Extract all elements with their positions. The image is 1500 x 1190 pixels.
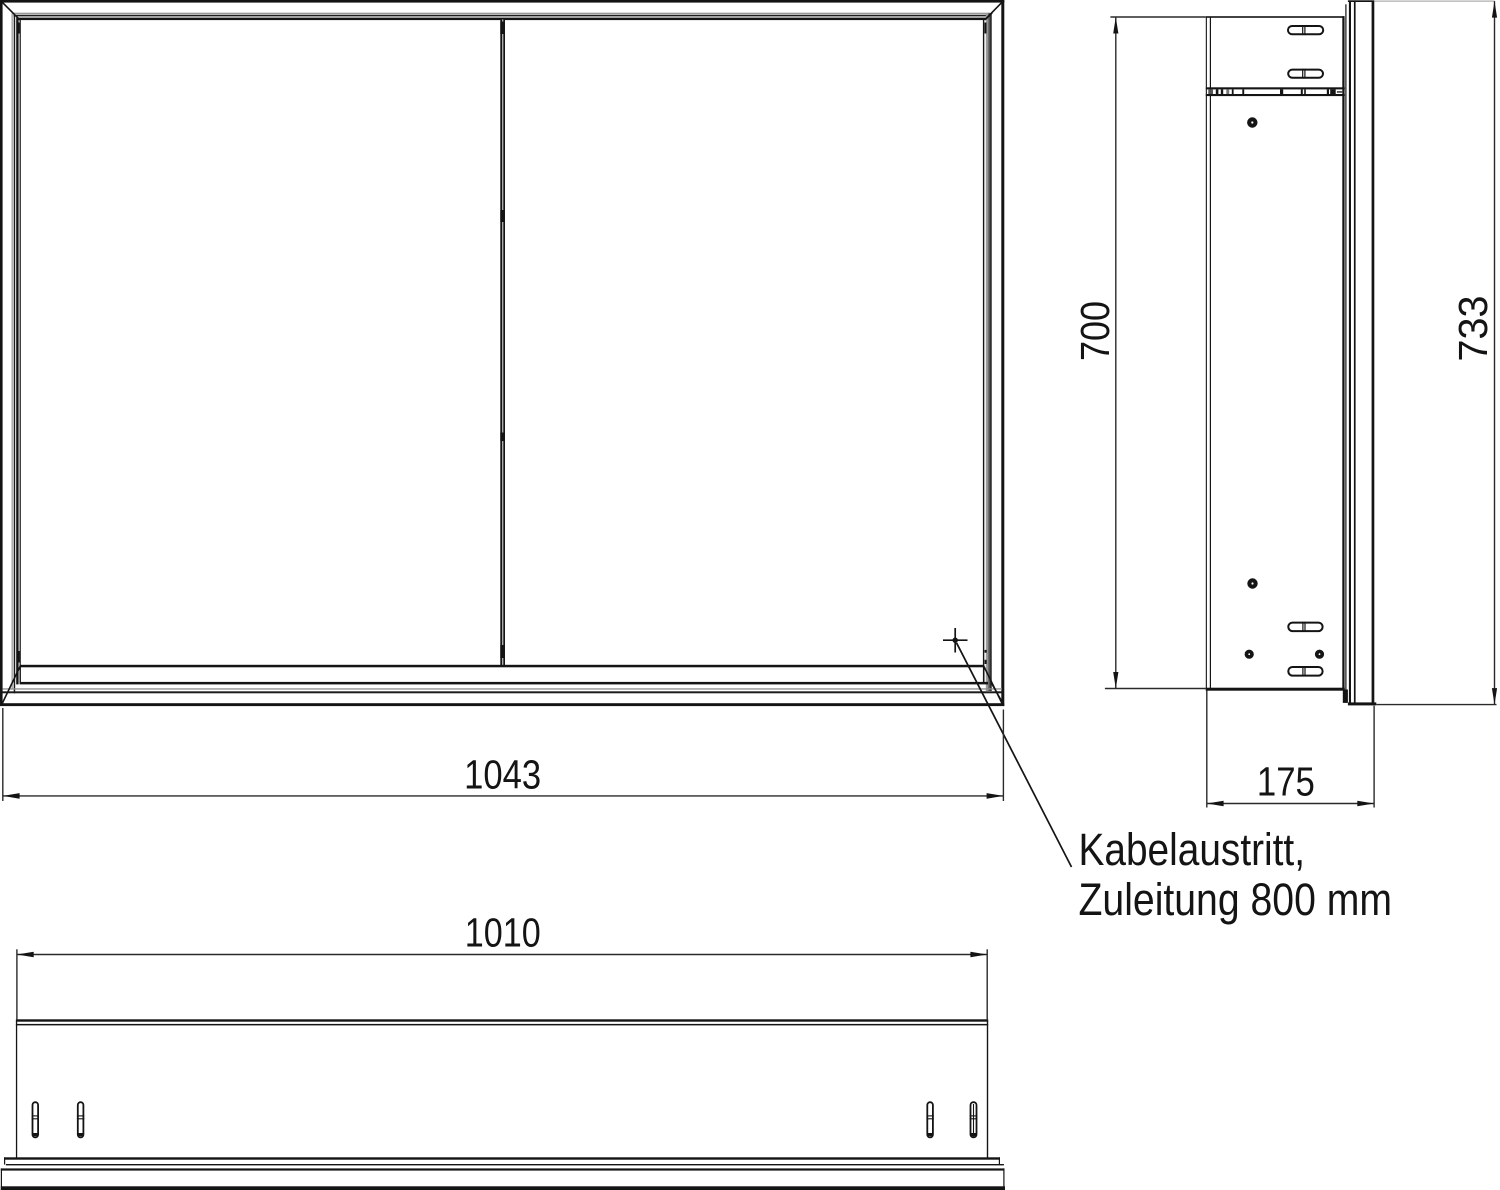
svg-text:733: 733	[1450, 296, 1496, 362]
svg-text:Zuleitung 800 mm: Zuleitung 800 mm	[1079, 874, 1393, 925]
svg-text:1010: 1010	[465, 909, 541, 955]
svg-text:700: 700	[1072, 301, 1118, 361]
svg-text:Kabelaustritt,: Kabelaustritt,	[1079, 824, 1306, 875]
svg-text:1043: 1043	[464, 752, 541, 798]
svg-text:175: 175	[1257, 759, 1315, 805]
